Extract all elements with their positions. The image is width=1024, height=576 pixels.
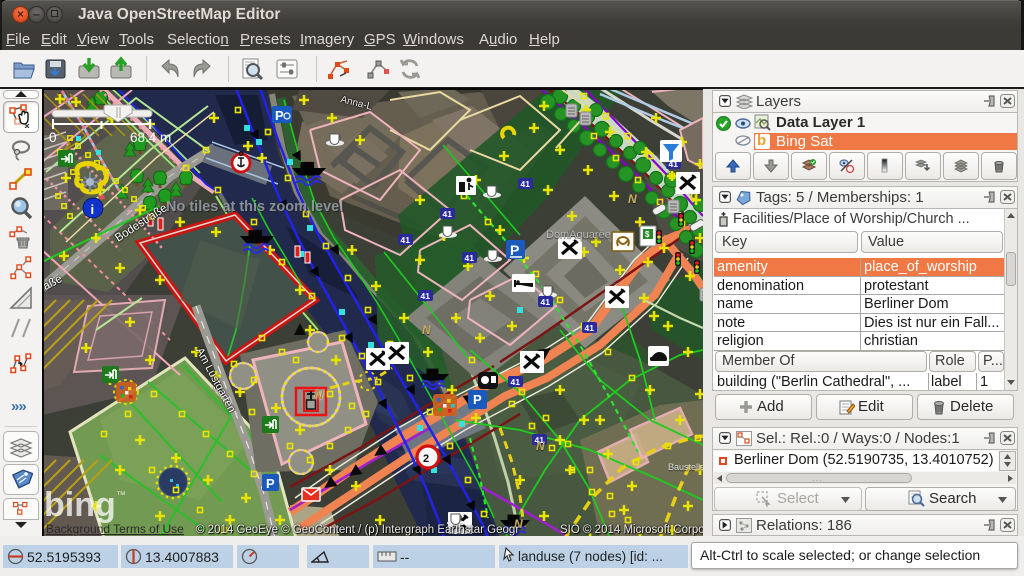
svg-text:P: P xyxy=(266,476,275,491)
svg-text:2: 2 xyxy=(423,453,429,465)
svg-text:SIO © 2014 Microsoft Corporati: SIO © 2014 Microsoft Corporation xyxy=(560,524,703,536)
svg-text:41: 41 xyxy=(585,323,595,333)
svg-text:41: 41 xyxy=(465,253,475,263)
svg-text:41: 41 xyxy=(521,179,531,189)
svg-text:DomAquarée: DomAquarée xyxy=(546,229,611,241)
svg-text:™: ™ xyxy=(116,490,126,501)
svg-text:41: 41 xyxy=(421,291,431,301)
svg-text:N: N xyxy=(422,323,431,337)
svg-text:41: 41 xyxy=(541,297,551,307)
svg-text:N: N xyxy=(536,439,545,453)
svg-text:41: 41 xyxy=(401,235,411,245)
svg-text:© 2014 GeoEye © GeoContent / (: © 2014 GeoEye © GeoContent / (p) Intergr… xyxy=(196,524,519,536)
svg-text:N: N xyxy=(628,192,637,206)
svg-text:i: i xyxy=(91,202,95,217)
svg-text:0: 0 xyxy=(49,130,57,145)
svg-text:41: 41 xyxy=(511,377,521,387)
svg-text:P: P xyxy=(275,108,284,123)
svg-text:P: P xyxy=(473,392,482,407)
svg-text:P: P xyxy=(510,242,519,258)
svg-text:68.4 m: 68.4 m xyxy=(130,130,171,145)
svg-text:41: 41 xyxy=(443,209,453,219)
svg-text:No tiles at this zoom level: No tiles at this zoom level xyxy=(166,199,343,215)
svg-text:Background Terms of Use: Background Terms of Use xyxy=(46,522,184,536)
svg-text:$: $ xyxy=(645,230,650,239)
svg-text:bing: bing xyxy=(44,486,116,524)
svg-text:N: N xyxy=(314,387,324,402)
svg-text:Baustelle: Baustelle xyxy=(668,462,703,472)
